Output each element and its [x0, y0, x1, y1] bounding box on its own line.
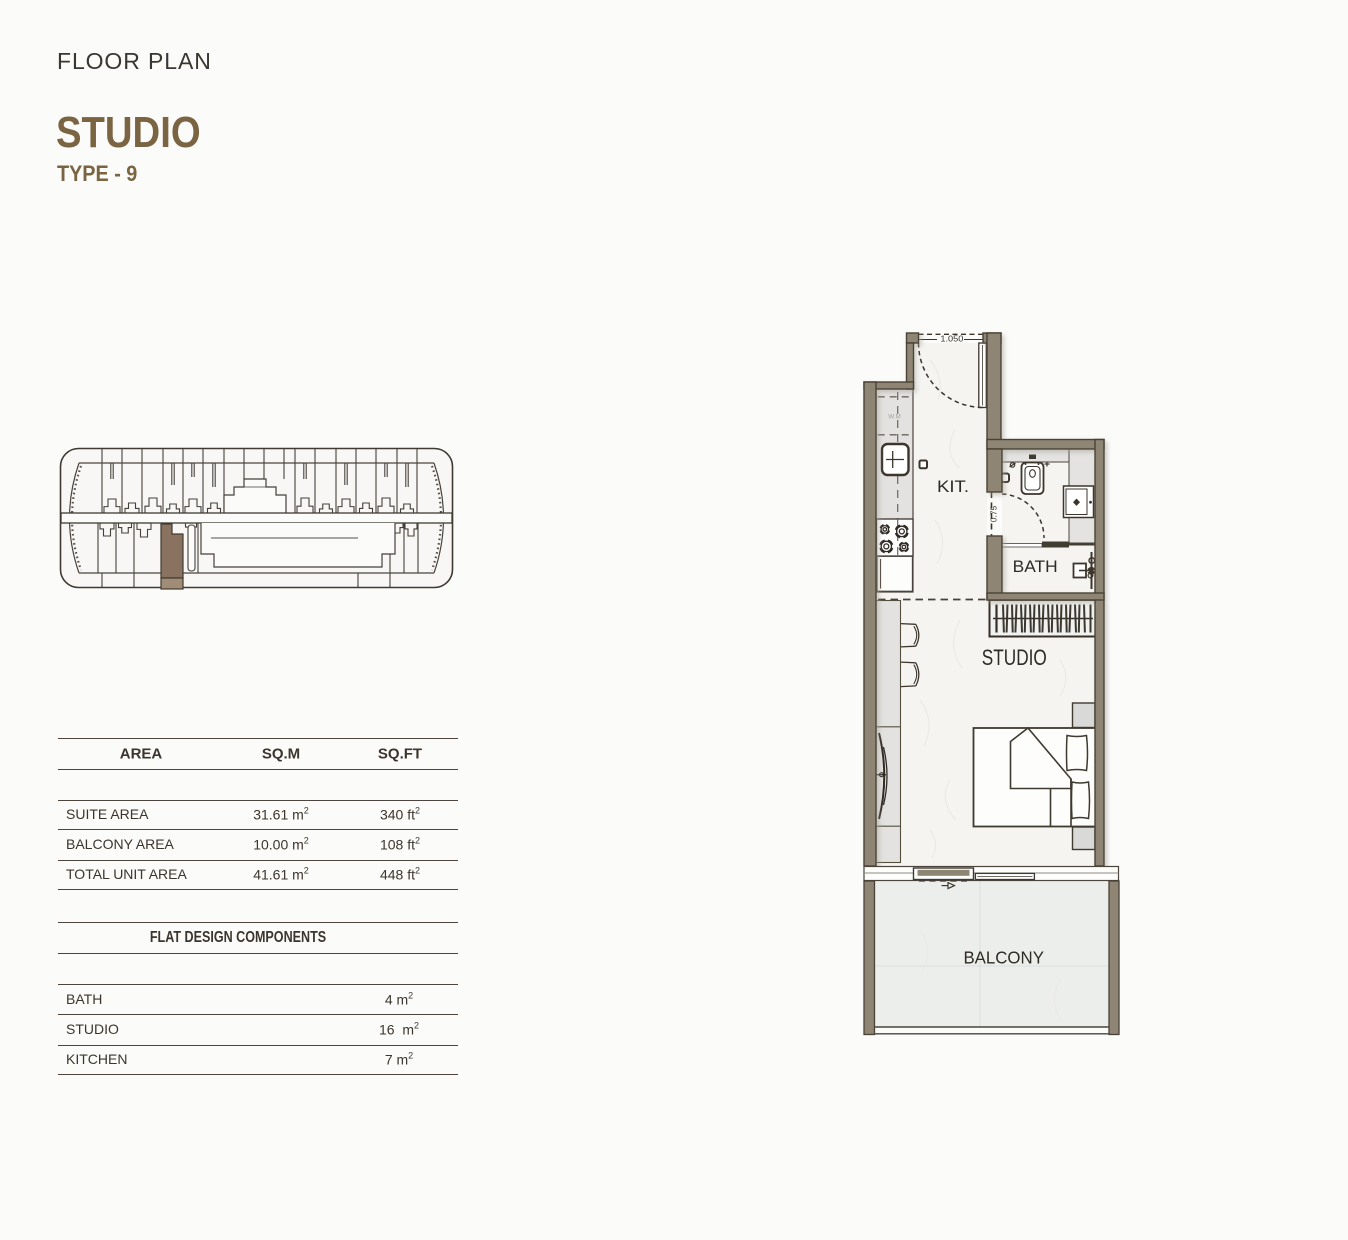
svg-text:W.M: W.M [888, 414, 901, 421]
svg-text:STUDIO: STUDIO [982, 645, 1047, 670]
svg-text:KIT.: KIT. [937, 477, 969, 496]
svg-text:BALCONY: BALCONY [963, 948, 1044, 968]
svg-text:0.75: 0.75 [989, 505, 999, 522]
svg-text:BATH: BATH [1013, 557, 1058, 576]
svg-text:1.050: 1.050 [940, 334, 963, 344]
